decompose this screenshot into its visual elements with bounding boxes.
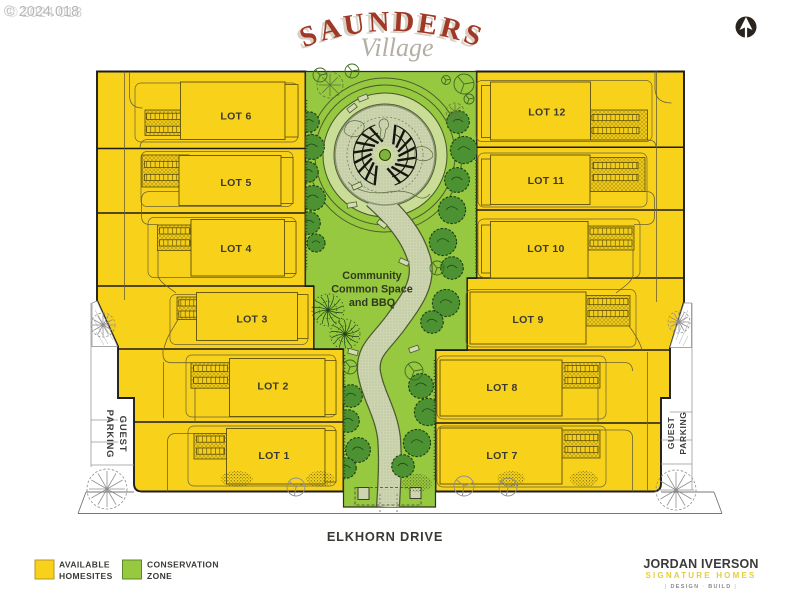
svg-text:LOT 2: LOT 2: [257, 380, 288, 392]
svg-text:ZONE: ZONE: [147, 571, 172, 581]
svg-text:Community: Community: [342, 270, 401, 282]
svg-text:SIGNATURE HOMES: SIGNATURE HOMES: [645, 571, 756, 580]
svg-text:| DESIGN · BUILD |: | DESIGN · BUILD |: [665, 584, 737, 590]
svg-text:LOT 7: LOT 7: [486, 450, 517, 462]
svg-text:JORDAN IVERSON: JORDAN IVERSON: [643, 557, 758, 571]
svg-text:LOT 8: LOT 8: [486, 382, 517, 394]
svg-text:© 2024 018: © 2024 018: [7, 5, 82, 21]
svg-text:Common Space: Common Space: [331, 284, 413, 296]
svg-text:PARKING: PARKING: [104, 410, 115, 459]
svg-text:LOT 10: LOT 10: [527, 243, 564, 255]
svg-text:LOT 3: LOT 3: [236, 314, 267, 326]
svg-text:and BBQ: and BBQ: [349, 297, 395, 309]
svg-text:ELKHORN DRIVE: ELKHORN DRIVE: [327, 529, 443, 544]
svg-text:LOT 6: LOT 6: [220, 111, 251, 123]
svg-text:LOT 4: LOT 4: [220, 243, 251, 255]
svg-text:AVAILABLE: AVAILABLE: [59, 560, 110, 570]
svg-text:HOMESITES: HOMESITES: [59, 571, 113, 581]
svg-text:LOT 9: LOT 9: [512, 314, 543, 326]
svg-text:PARKING: PARKING: [678, 411, 688, 454]
svg-text:GUEST: GUEST: [666, 417, 676, 450]
svg-text:GUEST: GUEST: [117, 416, 128, 453]
svg-text:LOT 11: LOT 11: [528, 175, 565, 187]
svg-text:LOT 12: LOT 12: [528, 107, 565, 119]
svg-text:LOT 5: LOT 5: [220, 177, 251, 189]
svg-text:LOT 1: LOT 1: [258, 450, 289, 462]
svg-text:Village: Village: [360, 33, 433, 62]
svg-text:CONSERVATION: CONSERVATION: [147, 560, 219, 570]
